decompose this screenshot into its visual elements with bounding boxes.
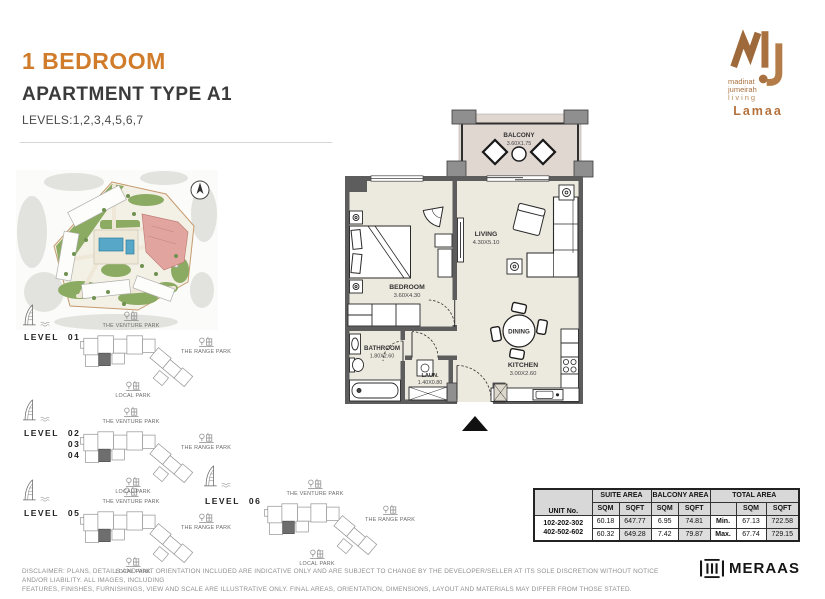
header-divider: [20, 142, 332, 143]
burj-al-arab-icon: [22, 478, 50, 502]
bathroom-dims: 1.80X2.60: [370, 354, 395, 360]
tv-unit: [458, 218, 464, 262]
cabinet-hatch: [494, 384, 507, 401]
balcony-area: BALCONY 3.60X1.75: [447, 110, 593, 177]
disclaimer-text: DISCLAIMER: PLANS, DETAILS AND UNIT ORIE…: [22, 567, 677, 594]
kitchen-label: KITCHEN: [508, 362, 538, 369]
laundry-dims: 1.40X0.80: [418, 380, 443, 386]
living-dims: 4.30X5.10: [473, 240, 501, 246]
park-icon: [198, 336, 215, 348]
range-park-label: THE RANGE PARK: [360, 504, 420, 523]
park-icon: [123, 310, 140, 322]
armchair: [513, 203, 546, 236]
level-06-diagram: THE VENTURE PARK THE RANGE PARK LOCAL PA…: [232, 478, 432, 574]
compass-icon: [191, 181, 209, 199]
park-icon: [307, 478, 324, 490]
suite-area-header: SUITE AREA: [592, 489, 651, 502]
range-park-label: THE RANGE PARK: [176, 432, 236, 451]
table-row: 102-202-302 402-502-602 60.18 647.77 6.9…: [534, 515, 799, 528]
unit-no-header: UNIT No.: [534, 489, 592, 515]
bedroom-label: BEDROOM: [389, 284, 425, 291]
sink-icon: [533, 390, 563, 401]
bathroom-label: BATHROOM: [364, 345, 400, 352]
brand-line-living: living: [728, 94, 770, 102]
meraas-logo-icon: [700, 558, 724, 579]
park-icon: [198, 432, 215, 444]
local-park-label: LOCAL PARK: [88, 380, 178, 399]
apartment-type-subtitle: APARTMENT TYPE A1: [22, 84, 232, 106]
venture-park-label: THE VENTURE PARK: [260, 478, 370, 497]
dining-label: DINING: [508, 329, 530, 336]
project-name: Lamaa: [726, 104, 790, 118]
pool: [99, 238, 123, 251]
meraas-logo-text: MERAAS: [729, 560, 800, 577]
entry-arrow: [462, 416, 488, 431]
park-icon: [382, 504, 399, 516]
brochure-page: 1 BEDROOM APARTMENT TYPE A1 LEVELS:1,2,3…: [0, 0, 825, 599]
park-icon: [123, 406, 140, 418]
balcony-dims: 3.60X1.75: [507, 141, 532, 147]
meraas-logo: MERAAS: [700, 558, 800, 579]
park-icon: [123, 486, 140, 498]
bedroom-dims: 3.60X4.30: [394, 293, 422, 299]
venture-park-label: THE VENTURE PARK: [76, 486, 186, 505]
park-icon: [309, 548, 326, 560]
burj-al-arab-icon: [22, 303, 50, 327]
venture-park-label: THE VENTURE PARK: [76, 310, 186, 329]
levels-text: LEVELS:1,2,3,4,5,6,7: [22, 113, 143, 127]
total-area-header: TOTAL AREA: [710, 489, 799, 502]
laundry-label: LAUN.: [421, 373, 439, 379]
range-park-label: THE RANGE PARK: [176, 512, 236, 531]
unit-numbers: 102-202-302 402-502-602: [534, 515, 592, 541]
balcony-label: BALCONY: [503, 132, 535, 139]
park-icon: [125, 380, 142, 392]
burj-al-arab-icon: [22, 398, 50, 422]
page-title: 1 BEDROOM: [22, 48, 166, 75]
range-park-label: THE RANGE PARK: [176, 336, 236, 355]
bed: [350, 226, 411, 278]
living-label: LIVING: [475, 231, 498, 238]
brand-wordmark: madinat jumeirah living: [728, 78, 770, 102]
balcony-area-header: BALCONY AREA: [651, 489, 710, 502]
area-table: UNIT No. SUITE AREA BALCONY AREA TOTAL A…: [533, 488, 800, 542]
floor-plan: BALCONY 3.60X1.75: [335, 100, 595, 440]
park-icon: [198, 512, 215, 524]
kitchen-dims: 3.00X2.60: [510, 371, 538, 377]
local-park-label: LOCAL PARK: [272, 548, 362, 567]
level-01-diagram: THE VENTURE PARK THE RANGE PARK LOCAL PA…: [48, 310, 248, 406]
venture-park-label: THE VENTURE PARK: [76, 406, 186, 425]
wardrobe: [348, 304, 420, 326]
